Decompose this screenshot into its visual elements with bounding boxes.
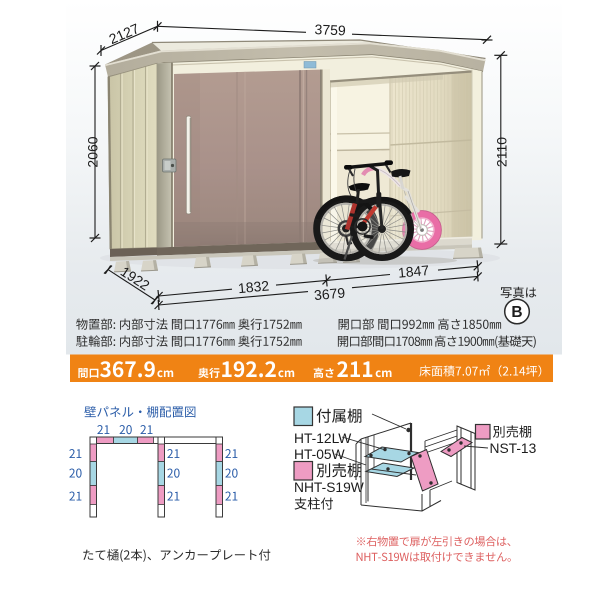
svg-text:B: B [511, 304, 522, 321]
svg-text:HT-12LW: HT-12LW [294, 431, 351, 446]
svg-text:1832: 1832 [237, 277, 270, 296]
svg-text:3759: 3759 [314, 21, 346, 38]
svg-text:2110: 2110 [494, 137, 510, 167]
svg-text:NHT-S19W: NHT-S19W [294, 480, 364, 495]
svg-text:3679: 3679 [313, 284, 346, 303]
svg-text:2060: 2060 [85, 136, 101, 167]
svg-text:1847: 1847 [397, 262, 430, 281]
svg-text:NST-13: NST-13 [490, 441, 537, 456]
